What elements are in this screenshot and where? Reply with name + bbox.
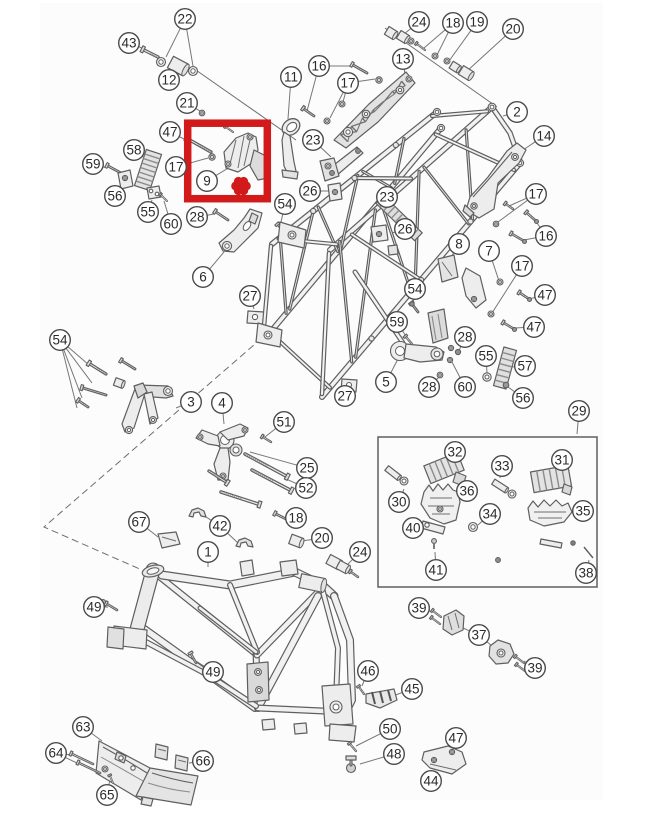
svg-text:67: 67 xyxy=(131,515,146,530)
svg-text:29: 29 xyxy=(571,404,586,419)
svg-text:47: 47 xyxy=(448,731,463,746)
svg-text:64: 64 xyxy=(48,746,64,761)
svg-text:63: 63 xyxy=(75,720,90,735)
svg-text:26: 26 xyxy=(397,222,412,237)
svg-text:18: 18 xyxy=(288,511,303,526)
svg-text:47: 47 xyxy=(537,288,552,303)
svg-text:27: 27 xyxy=(337,389,352,404)
svg-text:26: 26 xyxy=(302,184,317,199)
svg-text:23: 23 xyxy=(379,190,394,205)
svg-text:59: 59 xyxy=(85,157,100,172)
svg-text:52: 52 xyxy=(298,481,313,496)
svg-text:55: 55 xyxy=(140,205,155,220)
svg-text:3: 3 xyxy=(187,395,195,410)
svg-text:60: 60 xyxy=(457,380,472,395)
svg-text:55: 55 xyxy=(478,349,493,364)
svg-text:13: 13 xyxy=(395,52,410,67)
svg-text:17: 17 xyxy=(168,160,183,175)
svg-text:22: 22 xyxy=(177,12,192,27)
svg-text:51: 51 xyxy=(276,415,291,430)
svg-text:12: 12 xyxy=(161,73,176,88)
svg-text:24: 24 xyxy=(411,15,427,30)
svg-text:47: 47 xyxy=(526,320,541,335)
svg-text:17: 17 xyxy=(340,76,355,91)
svg-text:16: 16 xyxy=(538,229,553,244)
svg-text:59: 59 xyxy=(389,315,404,330)
svg-text:1: 1 xyxy=(204,545,212,560)
svg-text:45: 45 xyxy=(404,682,419,697)
svg-text:33: 33 xyxy=(494,459,509,474)
svg-text:57: 57 xyxy=(517,359,532,374)
svg-text:34: 34 xyxy=(482,507,498,522)
svg-text:37: 37 xyxy=(471,628,486,643)
svg-text:39: 39 xyxy=(527,661,542,676)
svg-text:43: 43 xyxy=(121,36,136,51)
svg-text:9: 9 xyxy=(203,174,211,189)
svg-text:38: 38 xyxy=(578,566,593,581)
svg-text:30: 30 xyxy=(391,495,406,510)
svg-text:21: 21 xyxy=(179,96,194,111)
svg-text:41: 41 xyxy=(428,563,443,578)
svg-text:66: 66 xyxy=(195,754,210,769)
svg-text:17: 17 xyxy=(528,187,543,202)
svg-text:48: 48 xyxy=(386,747,401,762)
svg-text:54: 54 xyxy=(52,333,68,348)
svg-text:4: 4 xyxy=(218,396,226,411)
svg-text:60: 60 xyxy=(163,217,178,232)
svg-text:58: 58 xyxy=(126,143,141,158)
svg-text:49: 49 xyxy=(86,600,101,615)
svg-text:28: 28 xyxy=(189,210,204,225)
svg-text:20: 20 xyxy=(505,22,520,37)
svg-text:2: 2 xyxy=(513,105,521,120)
svg-text:31: 31 xyxy=(554,453,569,468)
svg-text:23: 23 xyxy=(305,133,320,148)
svg-text:5: 5 xyxy=(382,375,390,390)
svg-text:11: 11 xyxy=(284,70,298,85)
svg-text:19: 19 xyxy=(469,15,484,30)
svg-text:42: 42 xyxy=(212,519,227,534)
svg-text:56: 56 xyxy=(107,189,122,204)
svg-text:32: 32 xyxy=(447,445,462,460)
svg-text:28: 28 xyxy=(421,380,436,395)
svg-text:39: 39 xyxy=(411,601,426,616)
svg-text:54: 54 xyxy=(277,197,293,212)
svg-text:49: 49 xyxy=(205,665,220,680)
svg-text:46: 46 xyxy=(360,664,375,679)
svg-text:24: 24 xyxy=(352,545,368,560)
svg-text:16: 16 xyxy=(311,59,326,74)
svg-text:20: 20 xyxy=(314,531,329,546)
svg-text:36: 36 xyxy=(459,484,474,499)
svg-text:8: 8 xyxy=(455,237,463,252)
svg-text:44: 44 xyxy=(423,774,439,789)
svg-text:17: 17 xyxy=(514,259,529,274)
svg-text:40: 40 xyxy=(405,521,420,536)
svg-text:65: 65 xyxy=(99,788,114,803)
svg-text:18: 18 xyxy=(445,16,460,31)
svg-text:28: 28 xyxy=(457,330,472,345)
svg-text:35: 35 xyxy=(575,504,590,519)
svg-text:50: 50 xyxy=(382,722,397,737)
svg-text:54: 54 xyxy=(407,282,423,297)
svg-text:47: 47 xyxy=(162,125,177,140)
svg-text:25: 25 xyxy=(299,461,314,476)
svg-text:14: 14 xyxy=(536,129,552,144)
svg-text:27: 27 xyxy=(242,289,257,304)
svg-text:56: 56 xyxy=(515,391,530,406)
svg-text:7: 7 xyxy=(485,244,493,259)
svg-text:6: 6 xyxy=(199,270,207,285)
